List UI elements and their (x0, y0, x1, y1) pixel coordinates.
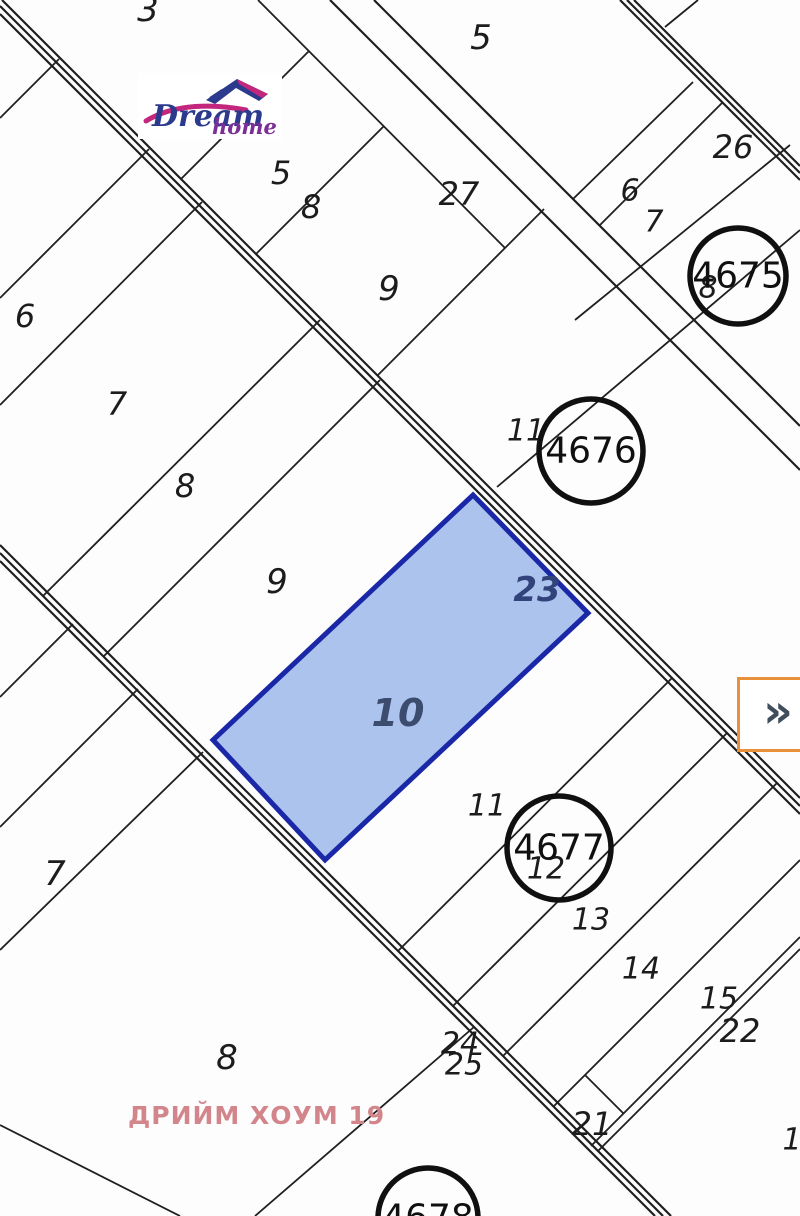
parcel-number-21: 21 (572, 1105, 613, 1143)
cadastral-id-4675: 4675 (692, 256, 784, 297)
parcel-number-22: 22 (720, 1012, 761, 1050)
double-chevron-right-icon: » (763, 688, 791, 734)
watermark-text: ДРИЙМ ХОУМ 19 (128, 1101, 385, 1130)
parcel-number-7: 7 (644, 205, 663, 240)
parcel-number-3: 3 (137, 0, 159, 30)
parcel-number-8: 8 (216, 1038, 238, 1078)
highlighted-parcel-corner-number: 23 (513, 570, 560, 610)
parcel-number-5: 5 (271, 154, 291, 192)
parcel-number-26: 26 (713, 128, 754, 166)
parcel-number-9: 9 (266, 562, 288, 602)
parcel-number-27: 27 (439, 175, 480, 213)
parcel-number-6: 6 (620, 174, 639, 209)
parcel-number-8: 8 (301, 188, 321, 226)
parcel-number-1: 1 (782, 1123, 800, 1158)
parcel-number-6: 6 (15, 297, 35, 335)
cadastral-id-4678: 4678 (382, 1198, 474, 1216)
highlighted-parcel-number: 10 (372, 691, 425, 735)
parcel-number-11: 11 (468, 789, 506, 824)
parcel-number-13: 13 (572, 903, 610, 938)
cadastral-map: 10 23 3589275672686789117811121314152221… (0, 0, 800, 1216)
cadastral-id-4676: 4676 (545, 431, 637, 472)
parcel-number-5: 5 (470, 18, 492, 58)
agency-logo: Dream home (138, 73, 282, 139)
parcel-number-9: 9 (378, 269, 400, 309)
parcel-number-8: 8 (175, 467, 195, 505)
parcel-number-7: 7 (107, 385, 128, 423)
expand-button[interactable]: » (737, 677, 800, 752)
cadastral-id-4677: 4677 (513, 828, 605, 869)
parcel-number-7: 7 (44, 854, 66, 894)
parcel-number-14: 14 (622, 952, 660, 987)
parcel-number-25: 25 (445, 1048, 483, 1083)
logo-word-home: home (212, 114, 277, 139)
